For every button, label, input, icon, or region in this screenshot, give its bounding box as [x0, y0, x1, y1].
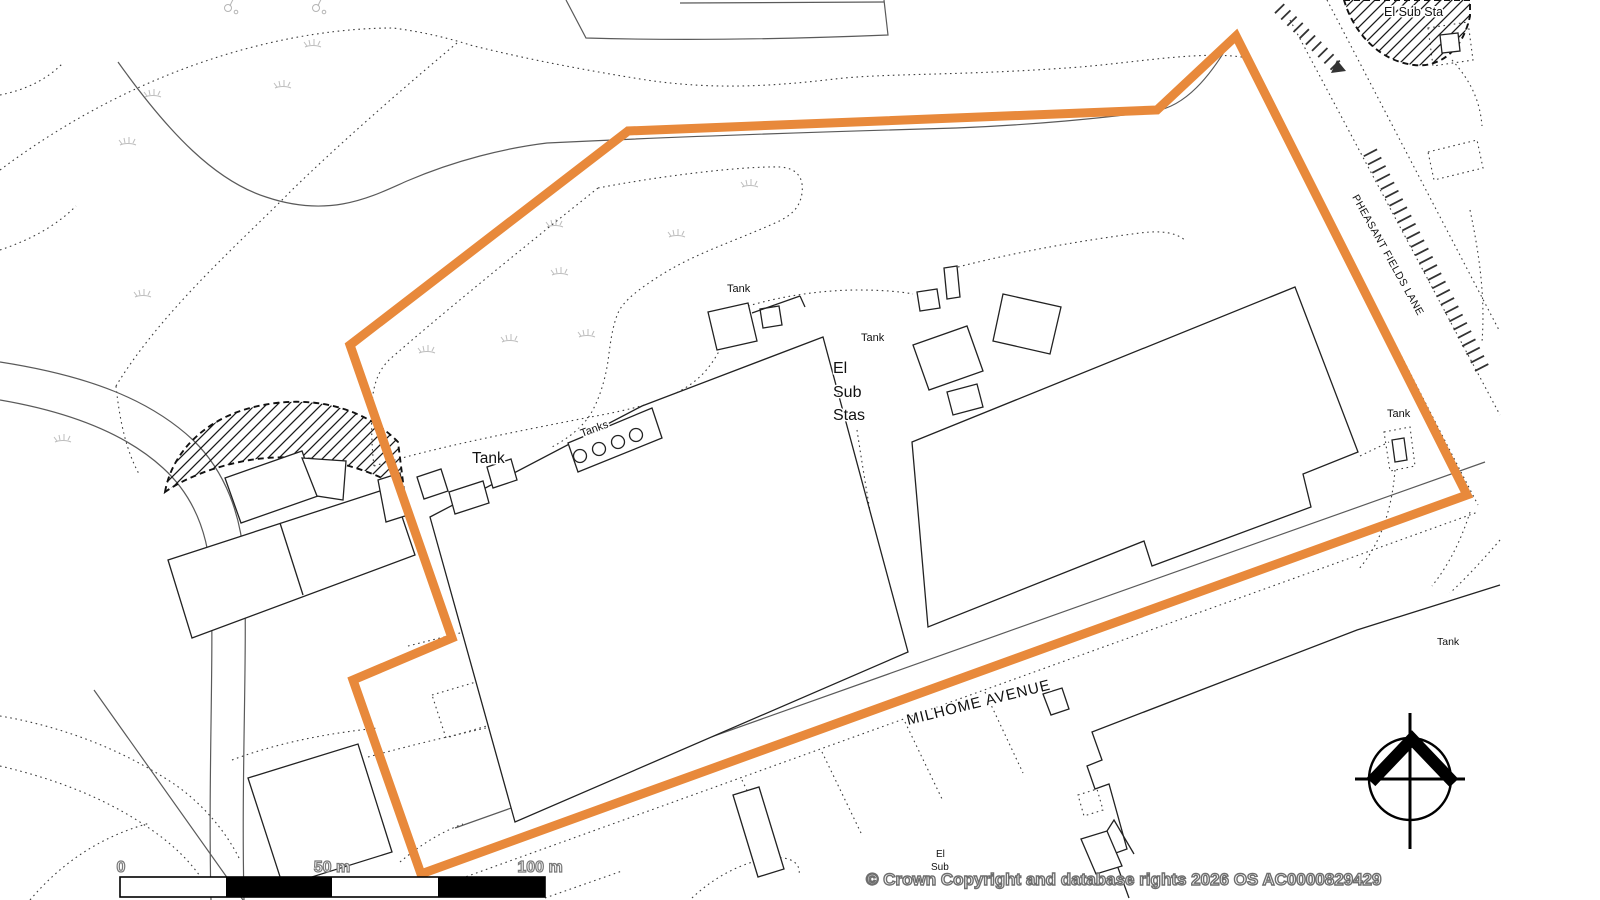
tank-circle: [612, 436, 625, 449]
label-el-sub-stas-3: Stas: [833, 407, 865, 424]
vegetation-symbols: [54, 0, 758, 442]
building-west-block: [168, 487, 415, 638]
label-tank-center: Tank: [861, 332, 885, 344]
site-plan-map: El Sub Sta Tank Tank El Sub Stas Tanks T…: [0, 0, 1600, 900]
scale-bar: 0 50 m 100 m: [117, 859, 563, 897]
scale-bar-segment: [438, 877, 545, 897]
scale-label-0: 0: [117, 859, 126, 876]
label-el-sub-bottom-1: El: [936, 849, 945, 860]
tank-circle: [630, 429, 643, 442]
tank-structure: [708, 303, 757, 350]
label-milhome-avenue: MILHOME AVENUE: [905, 677, 1053, 729]
label-el-sub-sta-top: El Sub Sta: [1384, 5, 1443, 19]
tank-circle: [593, 443, 606, 456]
label-el-sub-stas-2: Sub: [833, 384, 862, 401]
label-el-sub-stas-1: El: [833, 360, 847, 377]
scale-label-100m: 100 m: [517, 859, 562, 876]
el-sub-stas-building: [913, 326, 983, 390]
label-tank-southeast: Tank: [1437, 636, 1460, 648]
tank-circle: [574, 450, 587, 463]
label-tank-large: Tank: [472, 450, 505, 467]
building-east-large: [912, 287, 1358, 627]
scale-bar-segment: [226, 877, 332, 897]
tank-structure: [1392, 438, 1407, 462]
el-sub-sta-structure: [1440, 33, 1460, 53]
copyright-attribution: © Crown Copyright and database rights 20…: [866, 870, 1381, 889]
label-tank-top-center: Tank: [727, 283, 751, 295]
label-tank-lane: Tank: [1387, 408, 1411, 420]
scale-label-50m: 50 m: [314, 859, 350, 876]
